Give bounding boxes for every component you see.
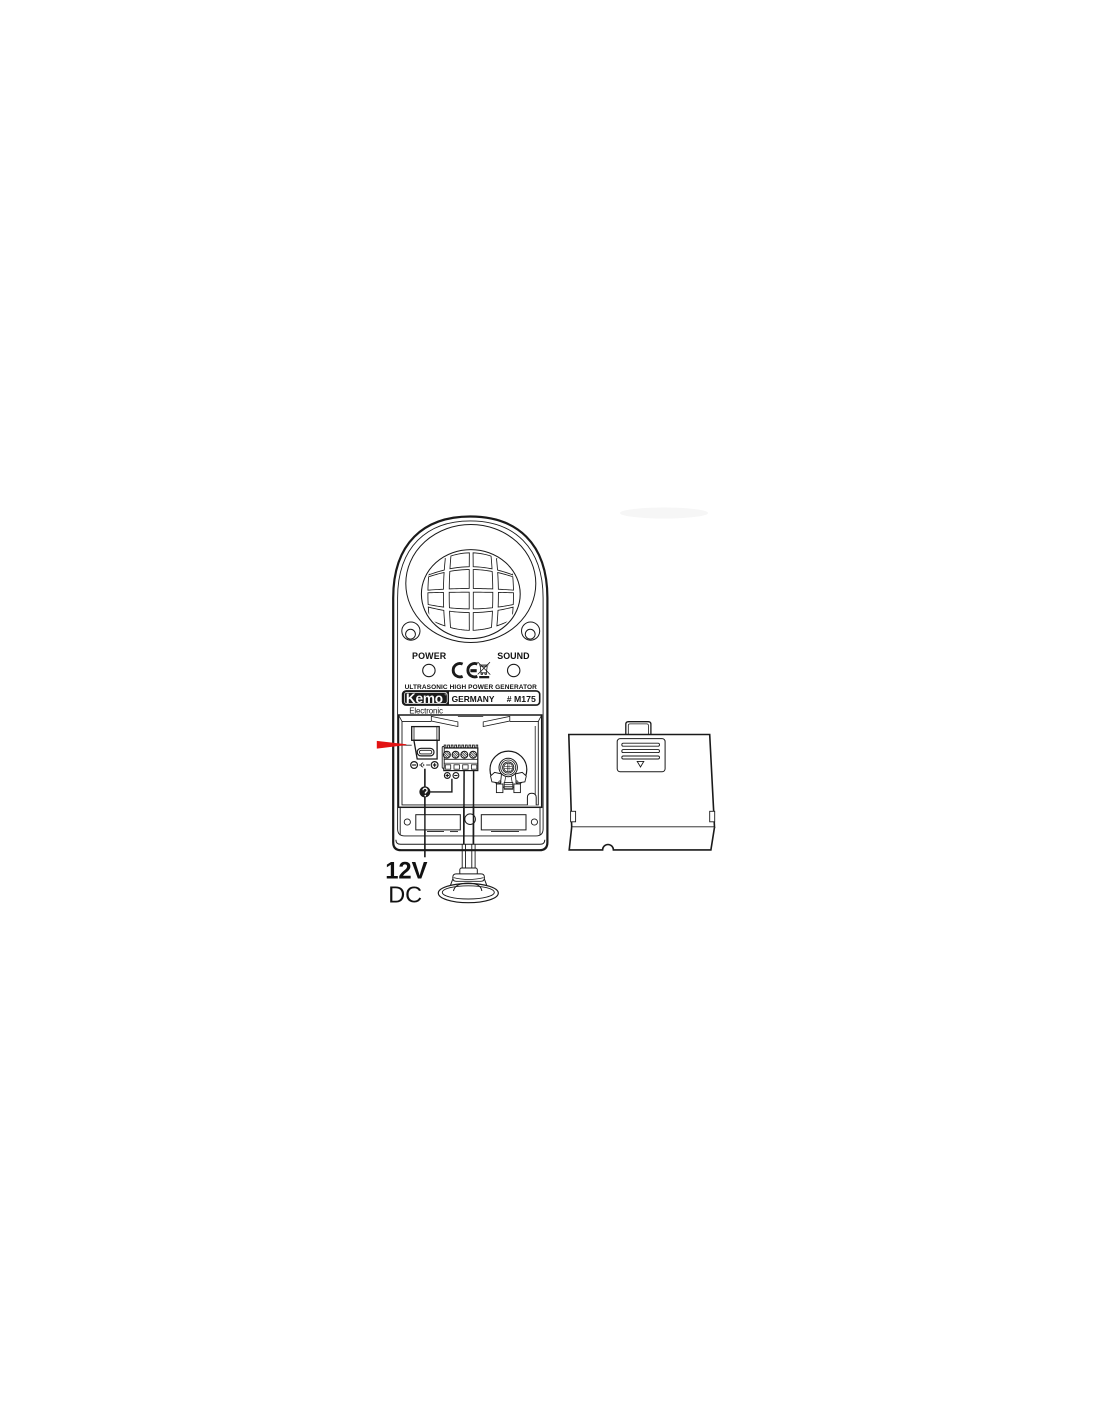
- svg-text:POWER: POWER: [412, 651, 447, 661]
- svg-text:Kemo: Kemo: [406, 691, 443, 706]
- svg-text:# M175: # M175: [507, 694, 536, 704]
- svg-text:DC: DC: [388, 882, 422, 908]
- svg-text:GERMANY: GERMANY: [452, 694, 495, 704]
- svg-text:Electronic: Electronic: [409, 706, 443, 715]
- svg-text:SOUND: SOUND: [497, 651, 530, 661]
- svg-text:ULTRASONIC HIGH POWER GENERATO: ULTRASONIC HIGH POWER GENERATOR: [405, 684, 538, 691]
